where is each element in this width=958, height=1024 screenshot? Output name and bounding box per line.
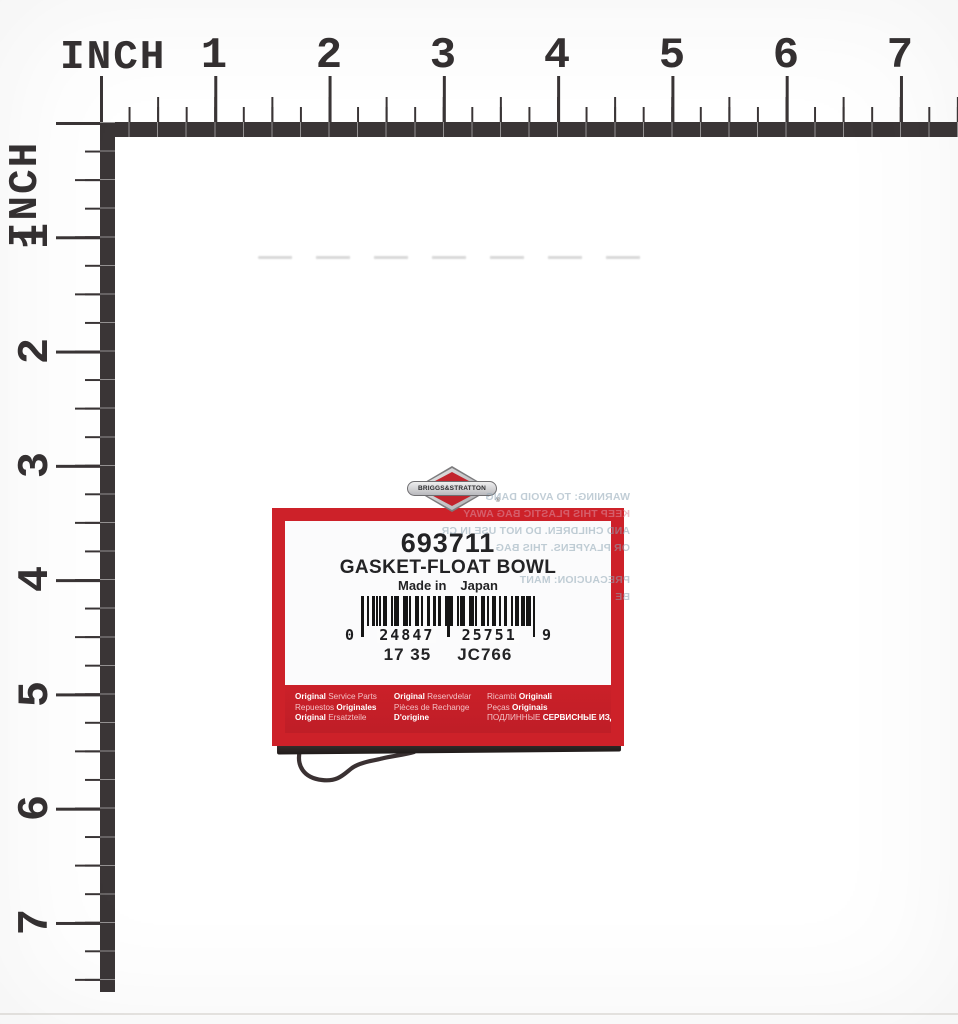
warning-line: OR PLAYPENS. THIS BAG [452,540,630,557]
ruler-top-number-2: 2 [307,34,351,78]
photo-edge-line [0,1013,958,1015]
bag-warning-mirrored-text: WARNING: TO AVOID DANG KEEP THIS PLASTIC… [452,489,630,606]
ruler-left-number-2: 2 [14,329,58,373]
product-photo-page: { "ruler_top": { "label": "INCH", "numbe… [0,0,958,1024]
ruler-top-number-6: 6 [764,34,808,78]
ruler-left-number-7: 7 [14,900,58,944]
ruler-left-bar [100,122,115,992]
warning-line: WARNING: TO AVOID DANG [452,489,630,506]
warning-line: PRECAUCION: MANT [452,572,630,589]
gasket-ring [282,748,432,792]
warning-line: KEEP THIS PLASTIC BAG AWAY [452,506,630,523]
ruler-left-number-5: 5 [14,672,58,716]
ruler-left-number-1: 1 [14,214,58,258]
ruler-top-number-4: 4 [535,34,579,78]
ruler-left-number-3: 3 [14,443,58,487]
ruler-left-ticks [56,122,100,992]
ruler-left-number-4: 4 [14,557,58,601]
ruler-left-number-6: 6 [14,786,58,830]
ruler-top-ticks [100,76,958,122]
ruler-top-bar [100,122,958,137]
ruler-top-number-1: 1 [192,34,236,78]
ruler-top-number-5: 5 [650,34,694,78]
warning-line: BE [452,589,630,606]
plastic-bag-top-edge [258,256,646,259]
ruler-top-number-7: 7 [878,34,922,78]
ruler-left-unit-label: INCH [4,88,48,300]
ruler-top-number-3: 3 [421,34,465,78]
warning-line: AND CHILDREN. DO NOT USE IN CR [452,523,630,540]
